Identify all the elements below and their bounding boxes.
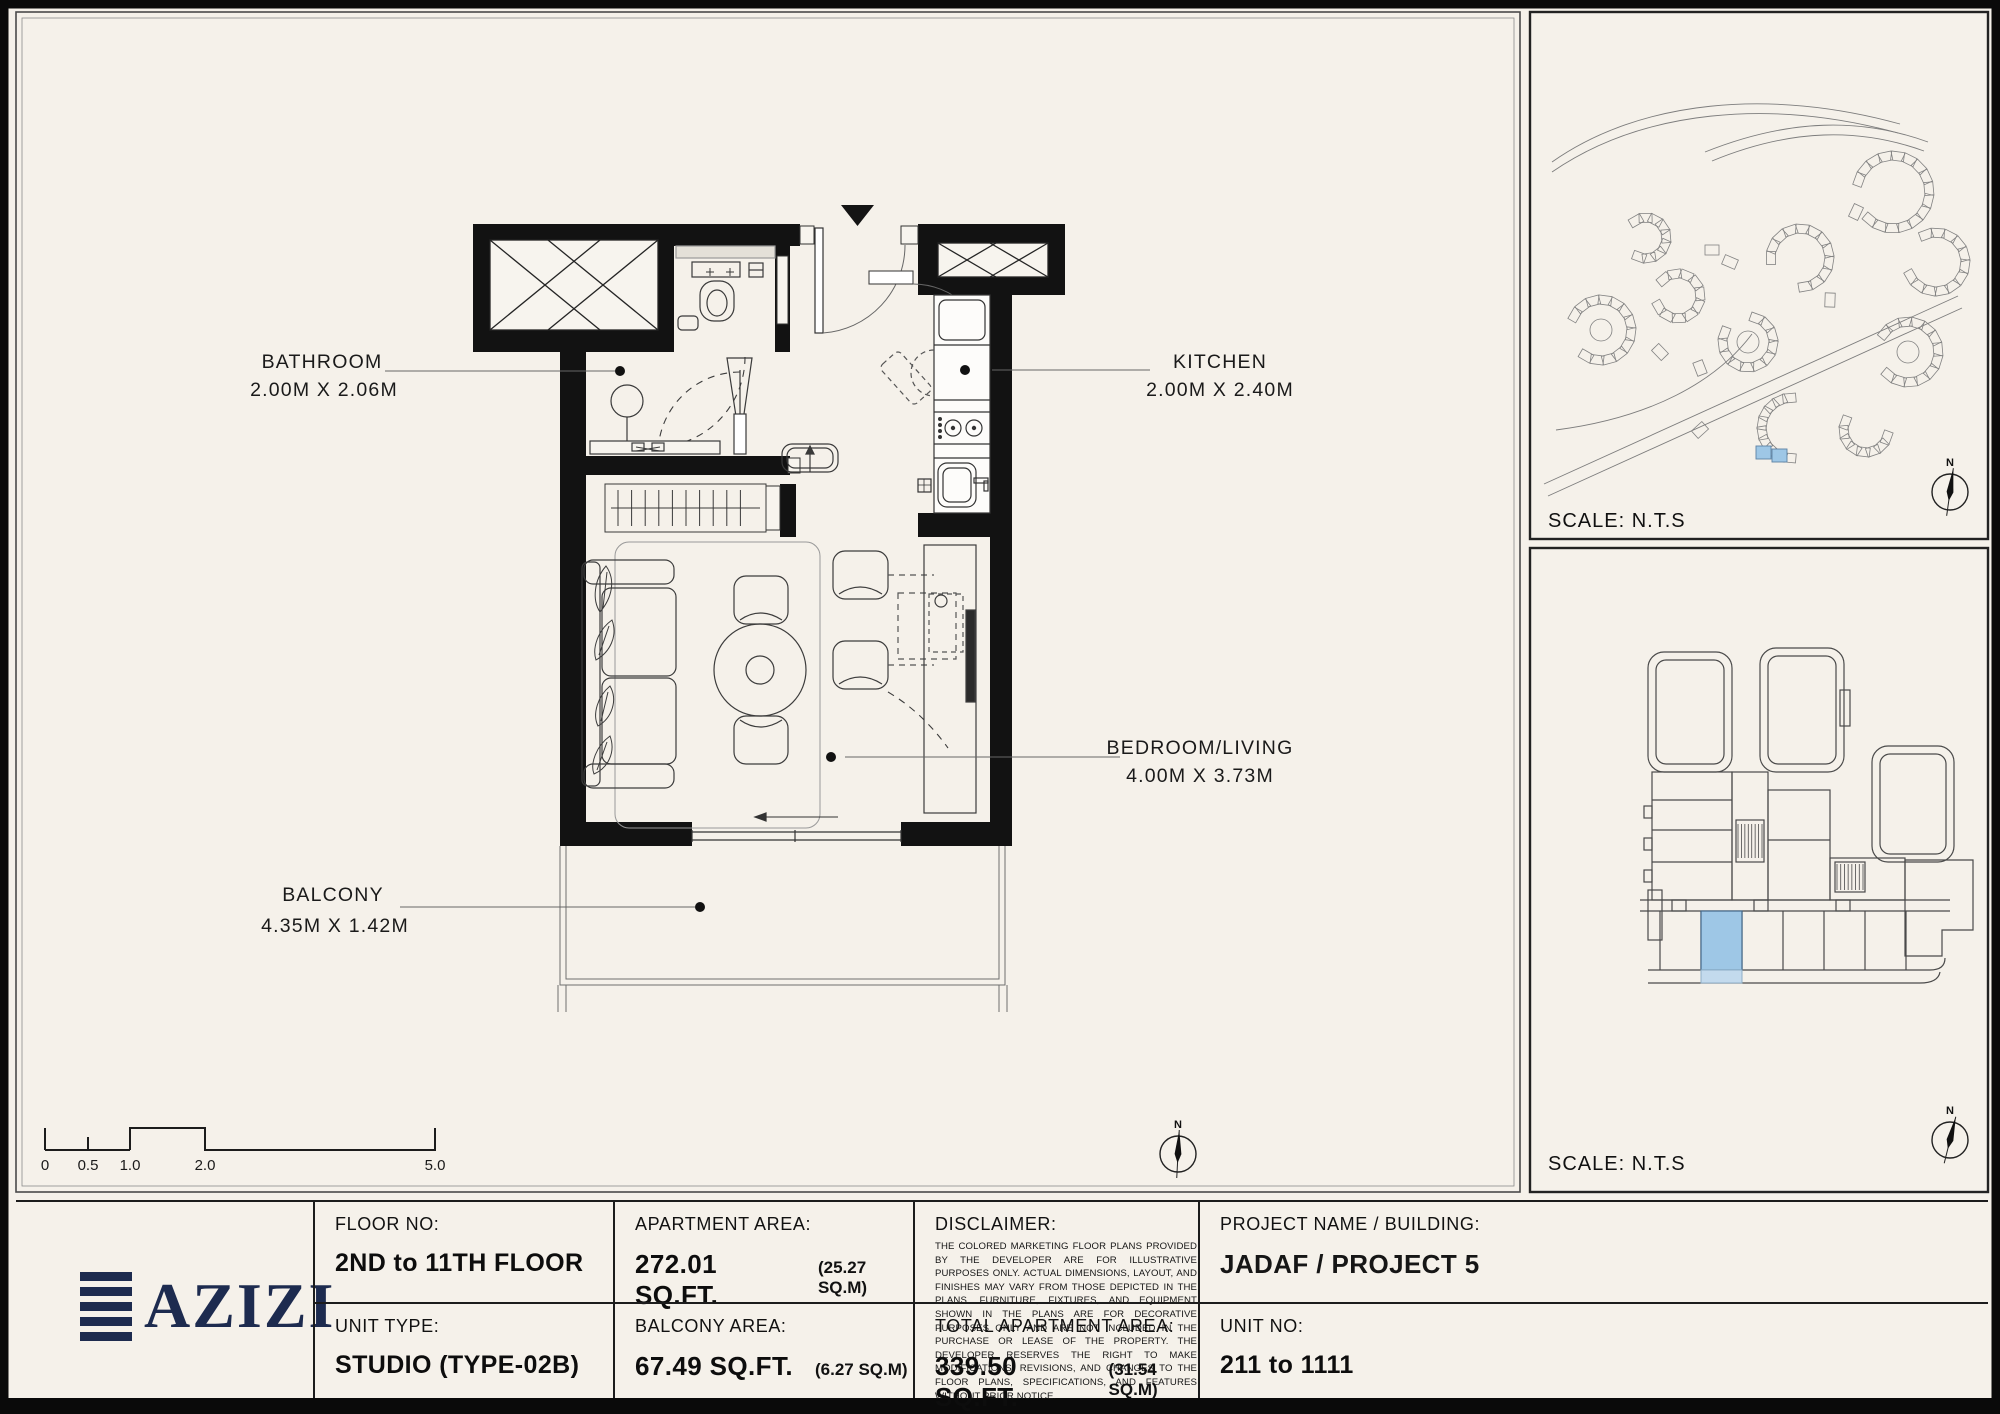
title-block: AZIZI FLOOR NO: 2ND to 11TH FLOOR APARTM…: [16, 1200, 1988, 1398]
building-key-plan: [1640, 648, 1973, 983]
bathroom-fixtures: [590, 358, 752, 454]
site-highlight-plot-2: [1772, 449, 1787, 462]
scale-tick-2: 2.0: [195, 1157, 216, 1174]
unit-type-label: UNIT TYPE:: [335, 1316, 613, 1337]
apartment-area-label: APARTMENT AREA:: [635, 1214, 913, 1235]
wardrobe: [605, 484, 766, 532]
site-map: [1544, 104, 1970, 496]
building-scale-note: SCALE: N.T.S: [1548, 1153, 1686, 1175]
azizi-logo: AZIZI: [80, 1272, 335, 1341]
compass-n: N: [1174, 1119, 1182, 1131]
unit-type-cell: UNIT TYPE: STUDIO (TYPE-02B): [313, 1302, 613, 1398]
unit-no-label: UNIT NO:: [1220, 1316, 1988, 1337]
kitchen-counters: [879, 295, 990, 513]
side-chairs: [833, 551, 956, 689]
scale-tick-5: 5.0: [425, 1157, 446, 1174]
balcony-area-cell: BALCONY AREA: 67.49 SQ.FT. (6.27 SQ.M): [613, 1302, 913, 1398]
service-shaft: [938, 243, 1048, 277]
logo-cell: AZIZI: [16, 1202, 313, 1398]
apartment-area-sqm: (25.27 SQ.M): [818, 1258, 913, 1298]
compass-building: N: [1932, 1105, 1968, 1164]
total-area-label: TOTAL APARTMENT AREA:: [935, 1316, 1198, 1337]
unit-type-value: STUDIO (TYPE-02B): [335, 1351, 613, 1380]
scale-tick-1: 1.0: [120, 1157, 141, 1174]
room-labels: BATHROOM 2.00M X 2.06M KITCHEN 2.00M X 2…: [250, 351, 1294, 937]
unit-no-cell: UNIT NO: 211 to 1111: [1198, 1302, 1988, 1398]
total-area-cell: TOTAL APARTMENT AREA: 339.50 SQ.FT. (31.…: [913, 1302, 1198, 1398]
disclaimer-cell: DISCLAIMER: THE COLORED MARKETING FLOOR …: [913, 1202, 1198, 1302]
tv-console: [924, 545, 976, 813]
entrance-marker: [841, 205, 874, 226]
disclaimer-label: DISCLAIMER:: [935, 1214, 1198, 1235]
kitchen-dims: 2.00M X 2.40M: [1146, 379, 1294, 401]
project-name-value: JADAF / PROJECT 5: [1220, 1249, 1988, 1280]
floorplan-sheet: SCALE: N.T.S: [0, 0, 2000, 1414]
scale-bar: 0 0.5 1.0 2.0 5.0: [41, 1128, 446, 1174]
living-furniture: [582, 542, 976, 828]
building-highlight-unit: [1701, 911, 1742, 983]
balcony-dims: 4.35M X 1.42M: [261, 915, 409, 937]
leaders: [385, 365, 1150, 912]
site-scale-note: SCALE: N.T.S: [1548, 510, 1686, 532]
bedroom-living-label: BEDROOM/LIVING: [1107, 737, 1294, 759]
plant-leaves: [593, 566, 614, 774]
floor-no-cell: FLOOR NO: 2ND to 11TH FLOOR: [313, 1202, 613, 1302]
site-highlight-plot: [1756, 446, 1771, 459]
compass-n: N: [1946, 457, 1954, 469]
compass-site: N: [1932, 457, 1968, 516]
dining-table: [714, 576, 806, 764]
total-area-value: 339.50 SQ.FT.: [935, 1351, 1087, 1413]
balcony-label: BALCONY: [282, 884, 384, 906]
balcony: [558, 846, 1007, 1012]
compass-n: N: [1946, 1105, 1954, 1117]
balcony-area-value: 67.49 SQ.FT.: [635, 1351, 793, 1382]
balcony-area-sqm: (6.27 SQ.M): [815, 1360, 908, 1380]
unit-no-value: 211 to 1111: [1220, 1351, 1988, 1380]
scale-tick-0: 0: [41, 1157, 49, 1174]
project-name-label: PROJECT NAME / BUILDING:: [1220, 1214, 1988, 1235]
balcony-area-label: BALCONY AREA:: [635, 1316, 913, 1337]
bedroom-living-dims: 4.00M X 3.73M: [1126, 765, 1274, 787]
bathroom-dims: 2.00M X 2.06M: [250, 379, 398, 401]
elevator-shaft: [490, 240, 658, 330]
main-floor-plan: BATHROOM 2.00M X 2.06M KITCHEN 2.00M X 2…: [250, 205, 1294, 1012]
total-area-sqm: (31.54 SQ.M): [1109, 1360, 1198, 1400]
floor-no-label: FLOOR NO:: [335, 1214, 613, 1235]
azizi-logo-text: AZIZI: [144, 1274, 335, 1338]
scale-tick-05: 0.5: [78, 1157, 99, 1174]
compass-main: N: [1160, 1119, 1196, 1178]
floor-no-value: 2ND to 11TH FLOOR: [335, 1249, 613, 1278]
bathroom-label: BATHROOM: [262, 351, 383, 373]
wc-fixtures: [676, 246, 775, 330]
azizi-logo-bars-icon: [80, 1272, 132, 1341]
kitchen-label: KITCHEN: [1173, 351, 1267, 373]
apartment-area-cell: APARTMENT AREA: 272.01 SQ.FT. (25.27 SQ.…: [613, 1202, 913, 1302]
project-name-cell: PROJECT NAME / BUILDING: JADAF / PROJECT…: [1198, 1202, 1988, 1302]
